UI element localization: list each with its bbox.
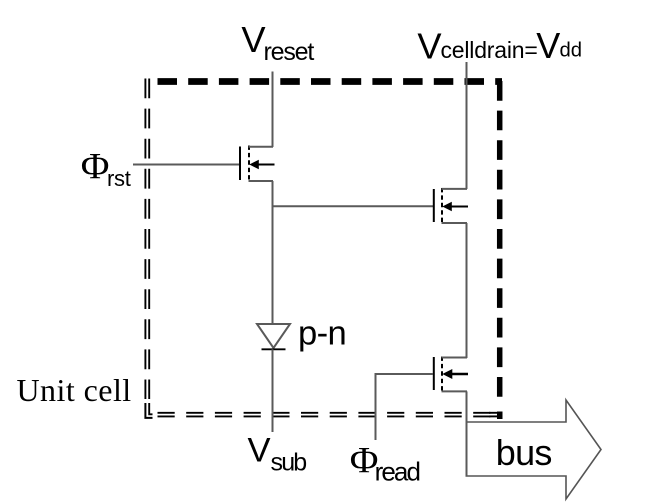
svg-text:celldrain=: celldrain= — [441, 37, 538, 63]
svg-text:V: V — [417, 25, 442, 66]
svg-text:reset: reset — [264, 38, 315, 66]
svg-text:read: read — [375, 457, 420, 487]
svg-text:V: V — [536, 25, 560, 66]
svg-text:p-n: p-n — [298, 315, 346, 353]
svg-text:sub: sub — [271, 448, 307, 476]
svg-text:dd: dd — [560, 39, 583, 61]
svg-text:bus: bus — [496, 432, 552, 473]
svg-text:V: V — [248, 432, 271, 470]
svg-text:Unit cell: Unit cell — [17, 372, 132, 408]
svg-text:rst: rst — [107, 166, 131, 191]
svg-text:Φ: Φ — [81, 147, 110, 188]
